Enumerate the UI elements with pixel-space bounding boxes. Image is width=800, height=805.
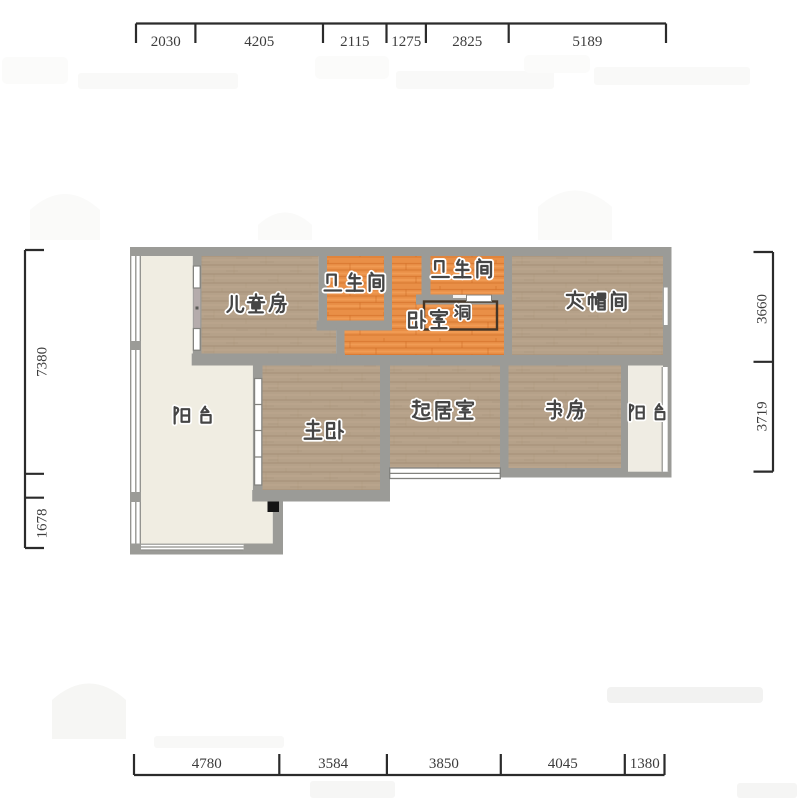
- svg-text:1678: 1678: [35, 509, 51, 539]
- svg-text:4205: 4205: [244, 34, 274, 50]
- svg-text:2825: 2825: [452, 34, 482, 50]
- svg-text:3584: 3584: [318, 756, 349, 772]
- svg-text:5189: 5189: [572, 34, 602, 50]
- svg-text:3719: 3719: [755, 401, 771, 431]
- svg-text:4780: 4780: [192, 756, 222, 772]
- svg-text:3850: 3850: [429, 756, 459, 772]
- svg-text:1275: 1275: [391, 34, 421, 50]
- svg-text:2030: 2030: [151, 34, 181, 50]
- svg-text:2115: 2115: [340, 34, 369, 50]
- svg-text:4045: 4045: [548, 756, 578, 772]
- svg-text:3660: 3660: [755, 294, 771, 324]
- svg-text:1380: 1380: [630, 756, 660, 772]
- svg-text:7380: 7380: [35, 347, 51, 377]
